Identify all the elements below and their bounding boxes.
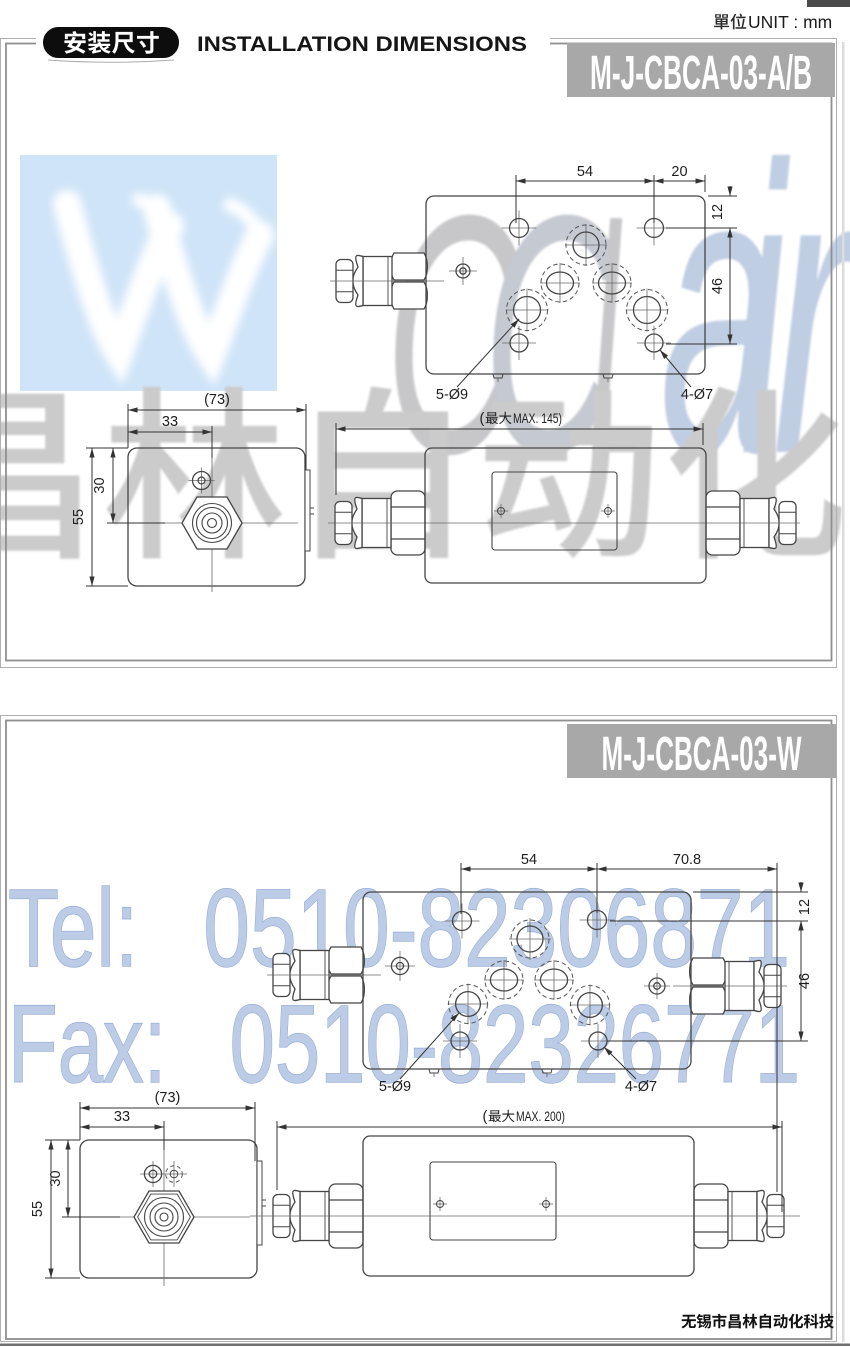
- svg-text:12: 12: [797, 899, 813, 915]
- svg-text:54: 54: [577, 164, 593, 180]
- svg-text:46: 46: [710, 278, 726, 294]
- svg-text:30: 30: [92, 477, 108, 493]
- svg-text:INSTALLATION DIMENSIONS: INSTALLATION DIMENSIONS: [197, 33, 527, 56]
- svg-text:(73): (73): [204, 392, 230, 408]
- svg-text:20: 20: [671, 164, 687, 180]
- svg-text:UNIT : mm: UNIT : mm: [748, 12, 832, 32]
- svg-text:70.8: 70.8: [673, 852, 701, 868]
- svg-text:Tel: 0510-82306871: Tel: 0510-82306871: [8, 867, 790, 990]
- svg-text:12: 12: [710, 204, 726, 220]
- svg-text:MAX. 145): MAX. 145): [513, 410, 562, 426]
- svg-text:(73): (73): [155, 1090, 181, 1106]
- svg-text:54: 54: [521, 852, 537, 868]
- svg-text:(: (: [483, 1109, 488, 1125]
- svg-text:(: (: [480, 411, 485, 427]
- svg-text:33: 33: [162, 414, 178, 430]
- svg-text:5-Ø9: 5-Ø9: [436, 387, 468, 403]
- svg-text:33: 33: [114, 1109, 130, 1125]
- svg-text:4-Ø7: 4-Ø7: [625, 1079, 657, 1095]
- svg-text:M-J-CBCA-03-A/B: M-J-CBCA-03-A/B: [590, 47, 812, 100]
- svg-text:30: 30: [48, 1170, 64, 1186]
- svg-text:55: 55: [30, 1201, 46, 1217]
- svg-text:4-Ø7: 4-Ø7: [681, 387, 713, 403]
- svg-text:5-Ø9: 5-Ø9: [379, 1079, 411, 1095]
- svg-text:M-J-CBCA-03-W: M-J-CBCA-03-W: [602, 728, 802, 781]
- svg-text:46: 46: [797, 973, 813, 989]
- svg-text:55: 55: [71, 509, 87, 525]
- svg-text:MAX. 200): MAX. 200): [516, 1108, 565, 1124]
